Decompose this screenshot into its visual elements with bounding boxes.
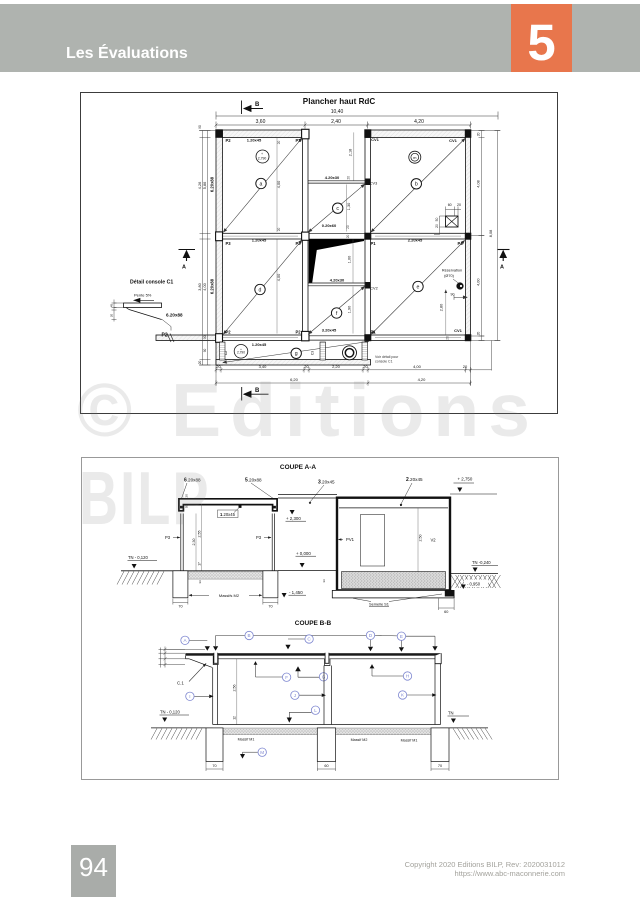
- svg-text:2,50: 2,50: [418, 535, 422, 542]
- svg-text:2.20x45: 2.20x45: [408, 238, 423, 243]
- svg-text:P1: P1: [370, 330, 376, 335]
- svg-text:F: F: [285, 675, 288, 680]
- svg-text:PV1: PV1: [346, 537, 355, 542]
- svg-text:C3: C3: [311, 351, 315, 355]
- svg-text:2,790: 2,790: [237, 351, 245, 355]
- svg-text:33: 33: [198, 580, 202, 584]
- svg-text:6.20x88: 6.20x88: [209, 278, 214, 294]
- svg-text:Réservation: Réservation: [442, 269, 462, 273]
- svg-text:Massif M1: Massif M1: [401, 738, 418, 742]
- svg-text:TN - 0,120: TN - 0,120: [128, 555, 148, 560]
- svg-text:+ 0,000: + 0,000: [296, 551, 311, 556]
- svg-text:2,18: 2,18: [348, 149, 352, 156]
- svg-text:c: c: [336, 206, 339, 212]
- svg-text:B: B: [248, 633, 251, 638]
- svg-text:1.20x45: 1.20x45: [252, 238, 267, 243]
- svg-text:1.20x45: 1.20x45: [220, 512, 236, 517]
- svg-text:g: g: [295, 351, 298, 357]
- svg-text:2,40: 2,40: [331, 119, 341, 125]
- svg-text:CV3: CV3: [370, 181, 377, 185]
- svg-text:70: 70: [438, 764, 442, 768]
- svg-text:Massifs M2: Massifs M2: [219, 593, 240, 598]
- svg-text:20: 20: [277, 228, 281, 232]
- svg-text:33: 33: [322, 579, 326, 583]
- svg-text:CV2: CV2: [370, 287, 377, 291]
- svg-text:20: 20: [346, 176, 350, 180]
- svg-text:50: 50: [435, 218, 439, 222]
- svg-text:Voir détail pour: Voir détail pour: [375, 355, 399, 359]
- svg-text:- 0,950: - 0,950: [467, 582, 481, 587]
- svg-text:70: 70: [212, 764, 216, 768]
- svg-text:4,00: 4,00: [277, 181, 281, 188]
- svg-text:P2: P2: [295, 138, 301, 143]
- svg-text:Massif M1: Massif M1: [238, 738, 255, 742]
- svg-text:10,40: 10,40: [331, 109, 344, 115]
- svg-text:(Ø70): (Ø70): [444, 274, 454, 278]
- svg-text:20: 20: [435, 224, 439, 228]
- svg-text:COUPE B-B: COUPE B-B: [295, 620, 332, 627]
- svg-text:P1: P1: [370, 241, 376, 246]
- svg-text:P3: P3: [225, 241, 231, 246]
- svg-text:4.20x30: 4.20x30: [330, 278, 345, 283]
- svg-text:L: L: [314, 708, 317, 713]
- svg-text:CV1: CV1: [371, 137, 380, 142]
- svg-text:6.20x88: 6.20x88: [209, 176, 214, 192]
- svg-text:20: 20: [198, 361, 202, 365]
- svg-text:I: I: [189, 694, 190, 699]
- svg-text:60: 60: [324, 764, 328, 768]
- svg-text:C.1: C.1: [177, 681, 184, 686]
- svg-text:70: 70: [178, 605, 182, 609]
- svg-text:30: 30: [203, 335, 207, 339]
- svg-text:H: H: [406, 674, 409, 679]
- svg-text:60: 60: [448, 203, 452, 207]
- svg-text:e: e: [417, 284, 420, 290]
- svg-text:12: 12: [232, 716, 236, 720]
- svg-text:90: 90: [203, 349, 207, 353]
- svg-text:Pente 5%: Pente 5%: [134, 293, 152, 298]
- svg-text:console C1: console C1: [375, 360, 393, 364]
- svg-text:17: 17: [197, 562, 201, 566]
- svg-text:1,90: 1,90: [348, 306, 352, 313]
- svg-text:20: 20: [346, 235, 350, 239]
- svg-text:20: 20: [457, 203, 461, 207]
- svg-text:b: b: [415, 182, 418, 188]
- svg-text:20: 20: [277, 141, 281, 145]
- svg-text:B: B: [255, 102, 260, 108]
- svg-text:3.20x45: 3.20x45: [318, 480, 335, 486]
- svg-text:0.20x60: 0.20x60: [322, 223, 337, 228]
- svg-text:60: 60: [444, 610, 448, 614]
- svg-text:20: 20: [346, 225, 350, 229]
- svg-text:P2: P2: [295, 330, 301, 335]
- svg-text:70: 70: [268, 605, 272, 609]
- svg-text:5,86: 5,86: [203, 182, 207, 189]
- svg-text:P2: P2: [225, 138, 231, 143]
- svg-text:4.20x30: 4.20x30: [325, 175, 340, 180]
- svg-text:V2: V2: [430, 538, 436, 543]
- svg-text:+: +: [261, 152, 263, 156]
- svg-text:20: 20: [477, 332, 481, 336]
- svg-text:- 1,450: - 1,450: [289, 590, 303, 595]
- svg-text:90: 90: [451, 292, 455, 296]
- svg-text:+ 2,300: + 2,300: [286, 516, 301, 521]
- svg-text:COUPE A-A: COUPE A-A: [280, 464, 317, 471]
- svg-text:Plancher haut RdC: Plancher haut RdC: [303, 97, 376, 106]
- svg-text:M: M: [260, 750, 264, 755]
- svg-text:4,00: 4,00: [477, 279, 481, 286]
- svg-text:CV1: CV1: [449, 138, 458, 143]
- svg-text:4,00: 4,00: [277, 274, 281, 281]
- svg-text:90: 90: [198, 125, 202, 129]
- svg-text:P4: P4: [457, 241, 463, 246]
- svg-text:E: E: [400, 634, 403, 639]
- svg-text:TN: TN: [448, 711, 454, 716]
- svg-text:8,08: 8,08: [489, 230, 493, 237]
- svg-text:20: 20: [110, 314, 114, 318]
- svg-text:3.20x45: 3.20x45: [322, 328, 337, 333]
- svg-text:P3: P3: [256, 535, 262, 540]
- svg-text:4,00: 4,00: [203, 283, 207, 290]
- svg-text:P2: P2: [225, 330, 231, 335]
- svg-text:A: A: [182, 265, 186, 271]
- svg-text:2,56: 2,56: [232, 685, 236, 692]
- svg-text:A: A: [500, 265, 504, 271]
- svg-text:P2: P2: [162, 333, 168, 339]
- svg-text:Massif M2: Massif M2: [351, 738, 368, 742]
- svg-text:3,80: 3,80: [198, 283, 202, 290]
- svg-text:d: d: [259, 287, 262, 293]
- svg-text:3,60: 3,60: [256, 119, 266, 125]
- svg-text:a: a: [260, 181, 263, 187]
- svg-text:TN -0,240: TN -0,240: [472, 560, 491, 565]
- svg-text:+ 2,750: + 2,750: [458, 477, 473, 482]
- svg-text:5.20x88: 5.20x88: [245, 478, 262, 484]
- svg-text:4,20: 4,20: [414, 119, 424, 125]
- svg-text:CV1: CV1: [454, 328, 463, 333]
- svg-text:20: 20: [446, 336, 450, 340]
- svg-text:6.20x88: 6.20x88: [166, 312, 183, 317]
- svg-text:2,790: 2,790: [258, 157, 267, 161]
- svg-text:TN - 0,120: TN - 0,120: [160, 710, 180, 715]
- svg-text:4,08: 4,08: [477, 180, 481, 187]
- svg-text:Semelle S1: Semelle S1: [369, 602, 389, 607]
- svg-text:4,26: 4,26: [198, 182, 202, 189]
- svg-text:P3: P3: [295, 241, 301, 246]
- svg-text:J: J: [294, 693, 296, 698]
- svg-text:1.20x45: 1.20x45: [252, 342, 267, 347]
- svg-text:1.20x45: 1.20x45: [247, 137, 262, 142]
- svg-text:2,80: 2,80: [440, 304, 444, 311]
- svg-text:1,00: 1,00: [348, 256, 352, 263]
- svg-text:2.20x45: 2.20x45: [406, 477, 423, 483]
- svg-text:45: 45: [110, 304, 114, 308]
- svg-text:1,30: 1,30: [347, 203, 351, 210]
- svg-text:Détail console C1: Détail console C1: [130, 279, 173, 285]
- svg-text:20: 20: [477, 132, 481, 136]
